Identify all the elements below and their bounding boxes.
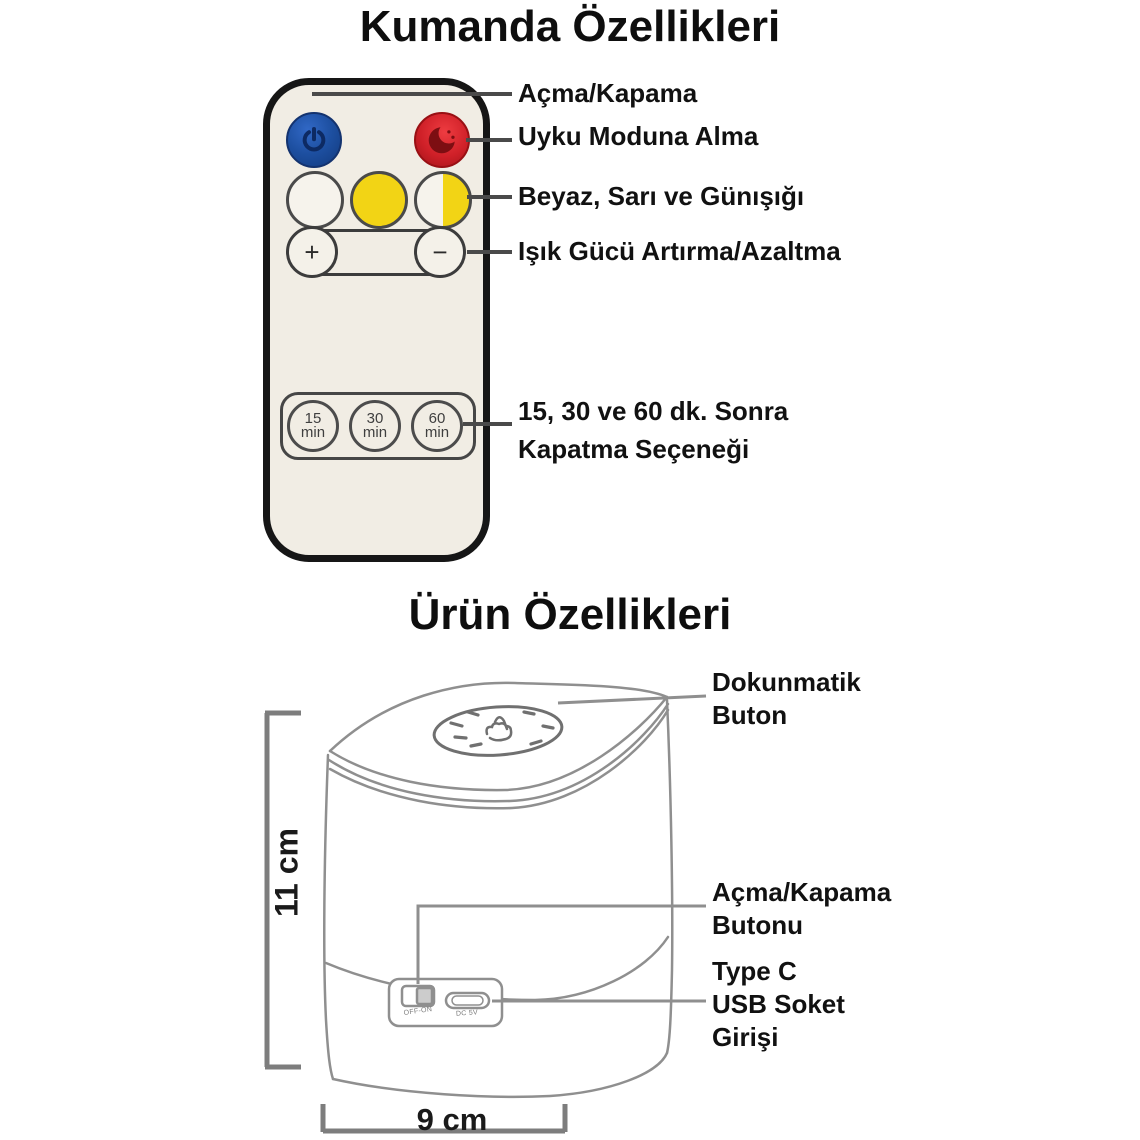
lamp-bottom xyxy=(333,1053,667,1097)
width-dimension-label: 9 cm xyxy=(352,1102,552,1138)
usb-c-port xyxy=(446,993,489,1008)
lamp-body-left xyxy=(324,755,333,1079)
label-light-colors: Beyaz, Sarı ve Günışığı xyxy=(518,183,804,210)
daylight-button xyxy=(414,171,472,229)
timer-button-15: 15 min xyxy=(287,400,339,452)
touch-pad xyxy=(432,703,563,760)
increase-brightness-button: + xyxy=(286,226,338,278)
label-power-line1: Açma/Kapama xyxy=(712,876,891,909)
yellow-light-button xyxy=(350,171,408,229)
white-light-button xyxy=(286,171,344,229)
bottom-panel xyxy=(389,979,502,1026)
device-callout-lines xyxy=(418,696,706,1001)
label-usb-line3: Girişi xyxy=(712,1021,845,1054)
product-infographic: Kumanda Özellikleri + − 15 xyxy=(0,0,1140,1140)
timer-button-30: 30 min xyxy=(349,400,401,452)
lamp-body-right xyxy=(667,700,672,1053)
sleep-button xyxy=(414,112,470,168)
label-timer: 15, 30 ve 60 dk. Sonra Kapatma Seçeneği xyxy=(518,392,788,468)
label-power-line2: Butonu xyxy=(712,909,891,942)
lamp-lid xyxy=(330,683,667,751)
label-brightness: Işık Gücü Artırma/Azaltma xyxy=(518,238,841,265)
timer-unit: min xyxy=(363,426,387,440)
label-power: Açma/Kapama xyxy=(518,80,697,107)
timer-button-group: 15 min 30 min 60 min xyxy=(280,392,476,460)
label-touch-line2: Buton xyxy=(712,699,861,732)
lamp-illustration xyxy=(324,683,672,1097)
product-section-title: Ürün Özellikleri xyxy=(0,590,1140,640)
power-button xyxy=(286,112,342,168)
remote-control: + − 15 min 30 min 60 min xyxy=(263,78,490,562)
label-timer-line1: 15, 30 ve 60 dk. Sonra xyxy=(518,392,788,430)
height-dimension-label: 11 cm xyxy=(269,803,306,943)
lamp-base-seam xyxy=(326,937,668,1000)
label-usb-line2: USB Soket xyxy=(712,988,845,1021)
switch-engraving: OFF-ON xyxy=(396,1005,441,1018)
dimension-lines xyxy=(265,713,565,1132)
label-touch-button: Dokunmatik Buton xyxy=(712,666,861,732)
remote-section-title: Kumanda Özellikleri xyxy=(0,2,1140,52)
label-power-switch: Açma/Kapama Butonu xyxy=(712,876,891,942)
power-icon xyxy=(297,123,331,157)
power-switch-knob xyxy=(417,988,432,1004)
power-switch xyxy=(402,986,434,1006)
timer-button-60: 60 min xyxy=(411,400,463,452)
moon-icon xyxy=(424,122,460,158)
plus-icon: + xyxy=(304,237,319,268)
touch-glow-dashes xyxy=(451,712,553,746)
label-timer-line2: Kapatma Seçeneği xyxy=(518,430,788,468)
touch-hand-icon xyxy=(487,717,512,740)
timer-unit: min xyxy=(301,426,325,440)
label-usb-line1: Type C xyxy=(712,955,845,988)
label-usb-socket: Type C USB Soket Girişi xyxy=(712,955,845,1054)
usb-engraving: DC 5V xyxy=(447,1009,487,1019)
decrease-brightness-button: − xyxy=(414,226,466,278)
label-touch-line1: Dokunmatik xyxy=(712,666,861,699)
minus-icon: − xyxy=(432,237,447,268)
label-sleep-mode: Uyku Moduna Alma xyxy=(518,123,758,150)
timer-unit: min xyxy=(425,426,449,440)
